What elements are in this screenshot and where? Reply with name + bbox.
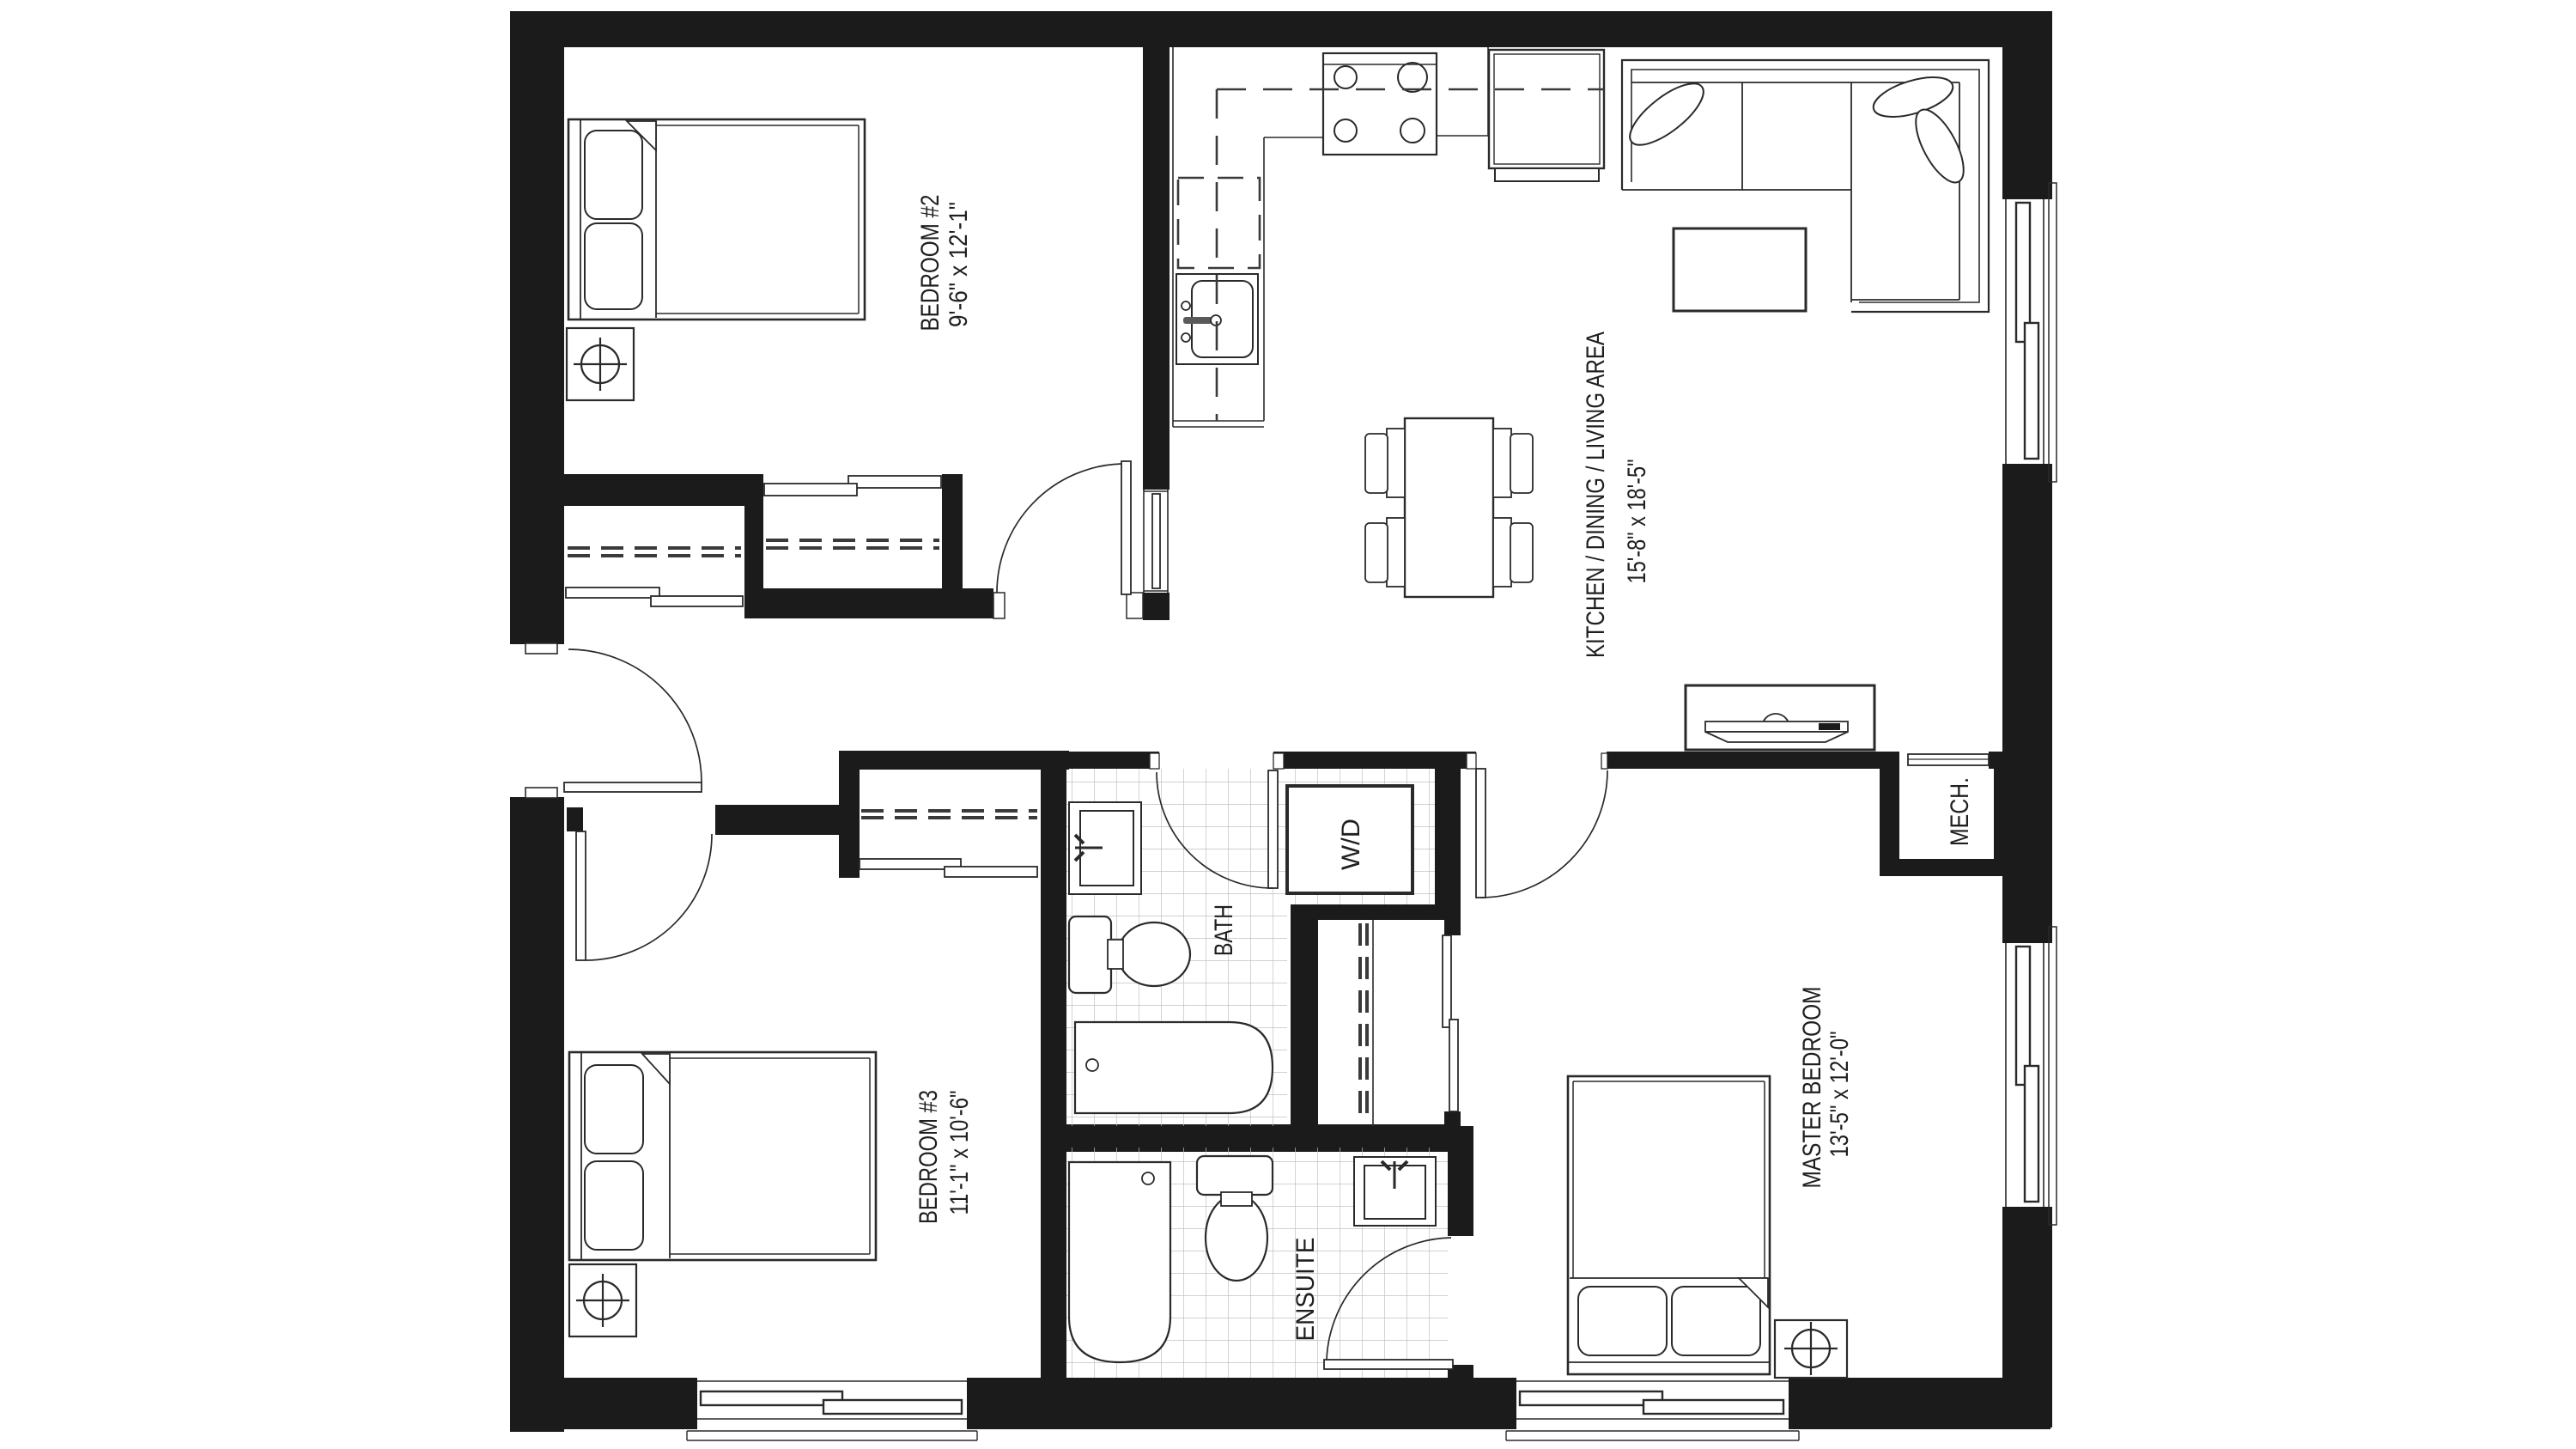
svg-text:9'-6" x 12'-1": 9'-6" x 12'-1" — [945, 202, 973, 327]
svg-text:W/D: W/D — [1337, 819, 1365, 870]
svg-text:BATH: BATH — [1210, 904, 1238, 956]
svg-text:KITCHEN / DINING / LIVING AREA: KITCHEN / DINING / LIVING AREA — [1582, 332, 1610, 658]
svg-text:ENSUITE: ENSUITE — [1291, 1238, 1320, 1342]
svg-text:15'-8" x 18'-5": 15'-8" x 18'-5" — [1623, 460, 1651, 584]
svg-text:BEDROOM #2: BEDROOM #2 — [916, 195, 945, 332]
svg-text:11'-1" x 10'-6": 11'-1" x 10'-6" — [945, 1091, 974, 1215]
svg-text:13'-5" x 12'-0": 13'-5" x 12'-0" — [1826, 1032, 1854, 1158]
svg-text:MECH.: MECH. — [1946, 777, 1974, 846]
svg-text:MASTER BEDROOM: MASTER BEDROOM — [1798, 987, 1826, 1189]
svg-text:BEDROOM #3: BEDROOM #3 — [914, 1090, 943, 1224]
